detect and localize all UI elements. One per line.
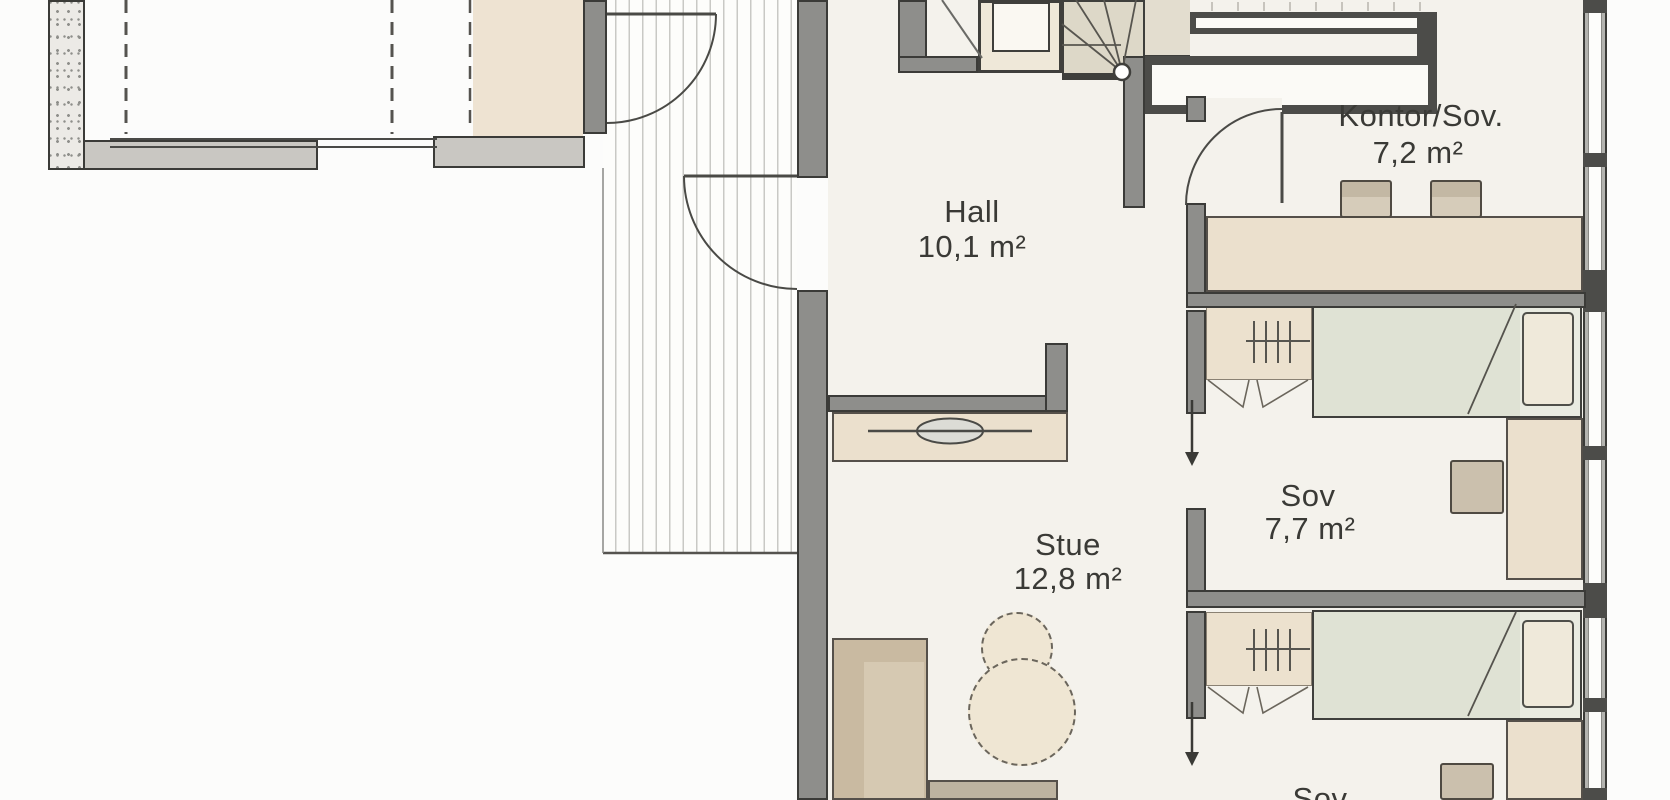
room-label-sov1: Sov <box>1281 480 1336 511</box>
room-label-kontor: Kontor/Sov. <box>1338 100 1503 131</box>
room-label-sov2: Sov <box>1293 783 1348 800</box>
room-area-hall: 10,1 m² <box>918 231 1027 262</box>
bed-fold-lines <box>1468 304 1516 716</box>
newel-post <box>1114 64 1130 80</box>
entry-arrows <box>1185 400 1199 766</box>
wardrobe-door-swings <box>1208 380 1308 713</box>
floorplan: Hall 10,1 m² Kontor/Sov. 7,2 m² Sov 7,7 … <box>0 0 1670 800</box>
room-area-kontor: 7,2 m² <box>1373 137 1464 168</box>
room-label-stue: Stue <box>1035 529 1101 560</box>
stair-tread-lines <box>1062 0 1420 80</box>
balcony-lines <box>110 0 982 553</box>
room-area-sov1: 7,7 m² <box>1265 513 1356 544</box>
room-area-stue: 12,8 m² <box>1014 563 1123 594</box>
sideboard-decor <box>868 419 1032 444</box>
room-label-hall: Hall <box>944 196 999 227</box>
